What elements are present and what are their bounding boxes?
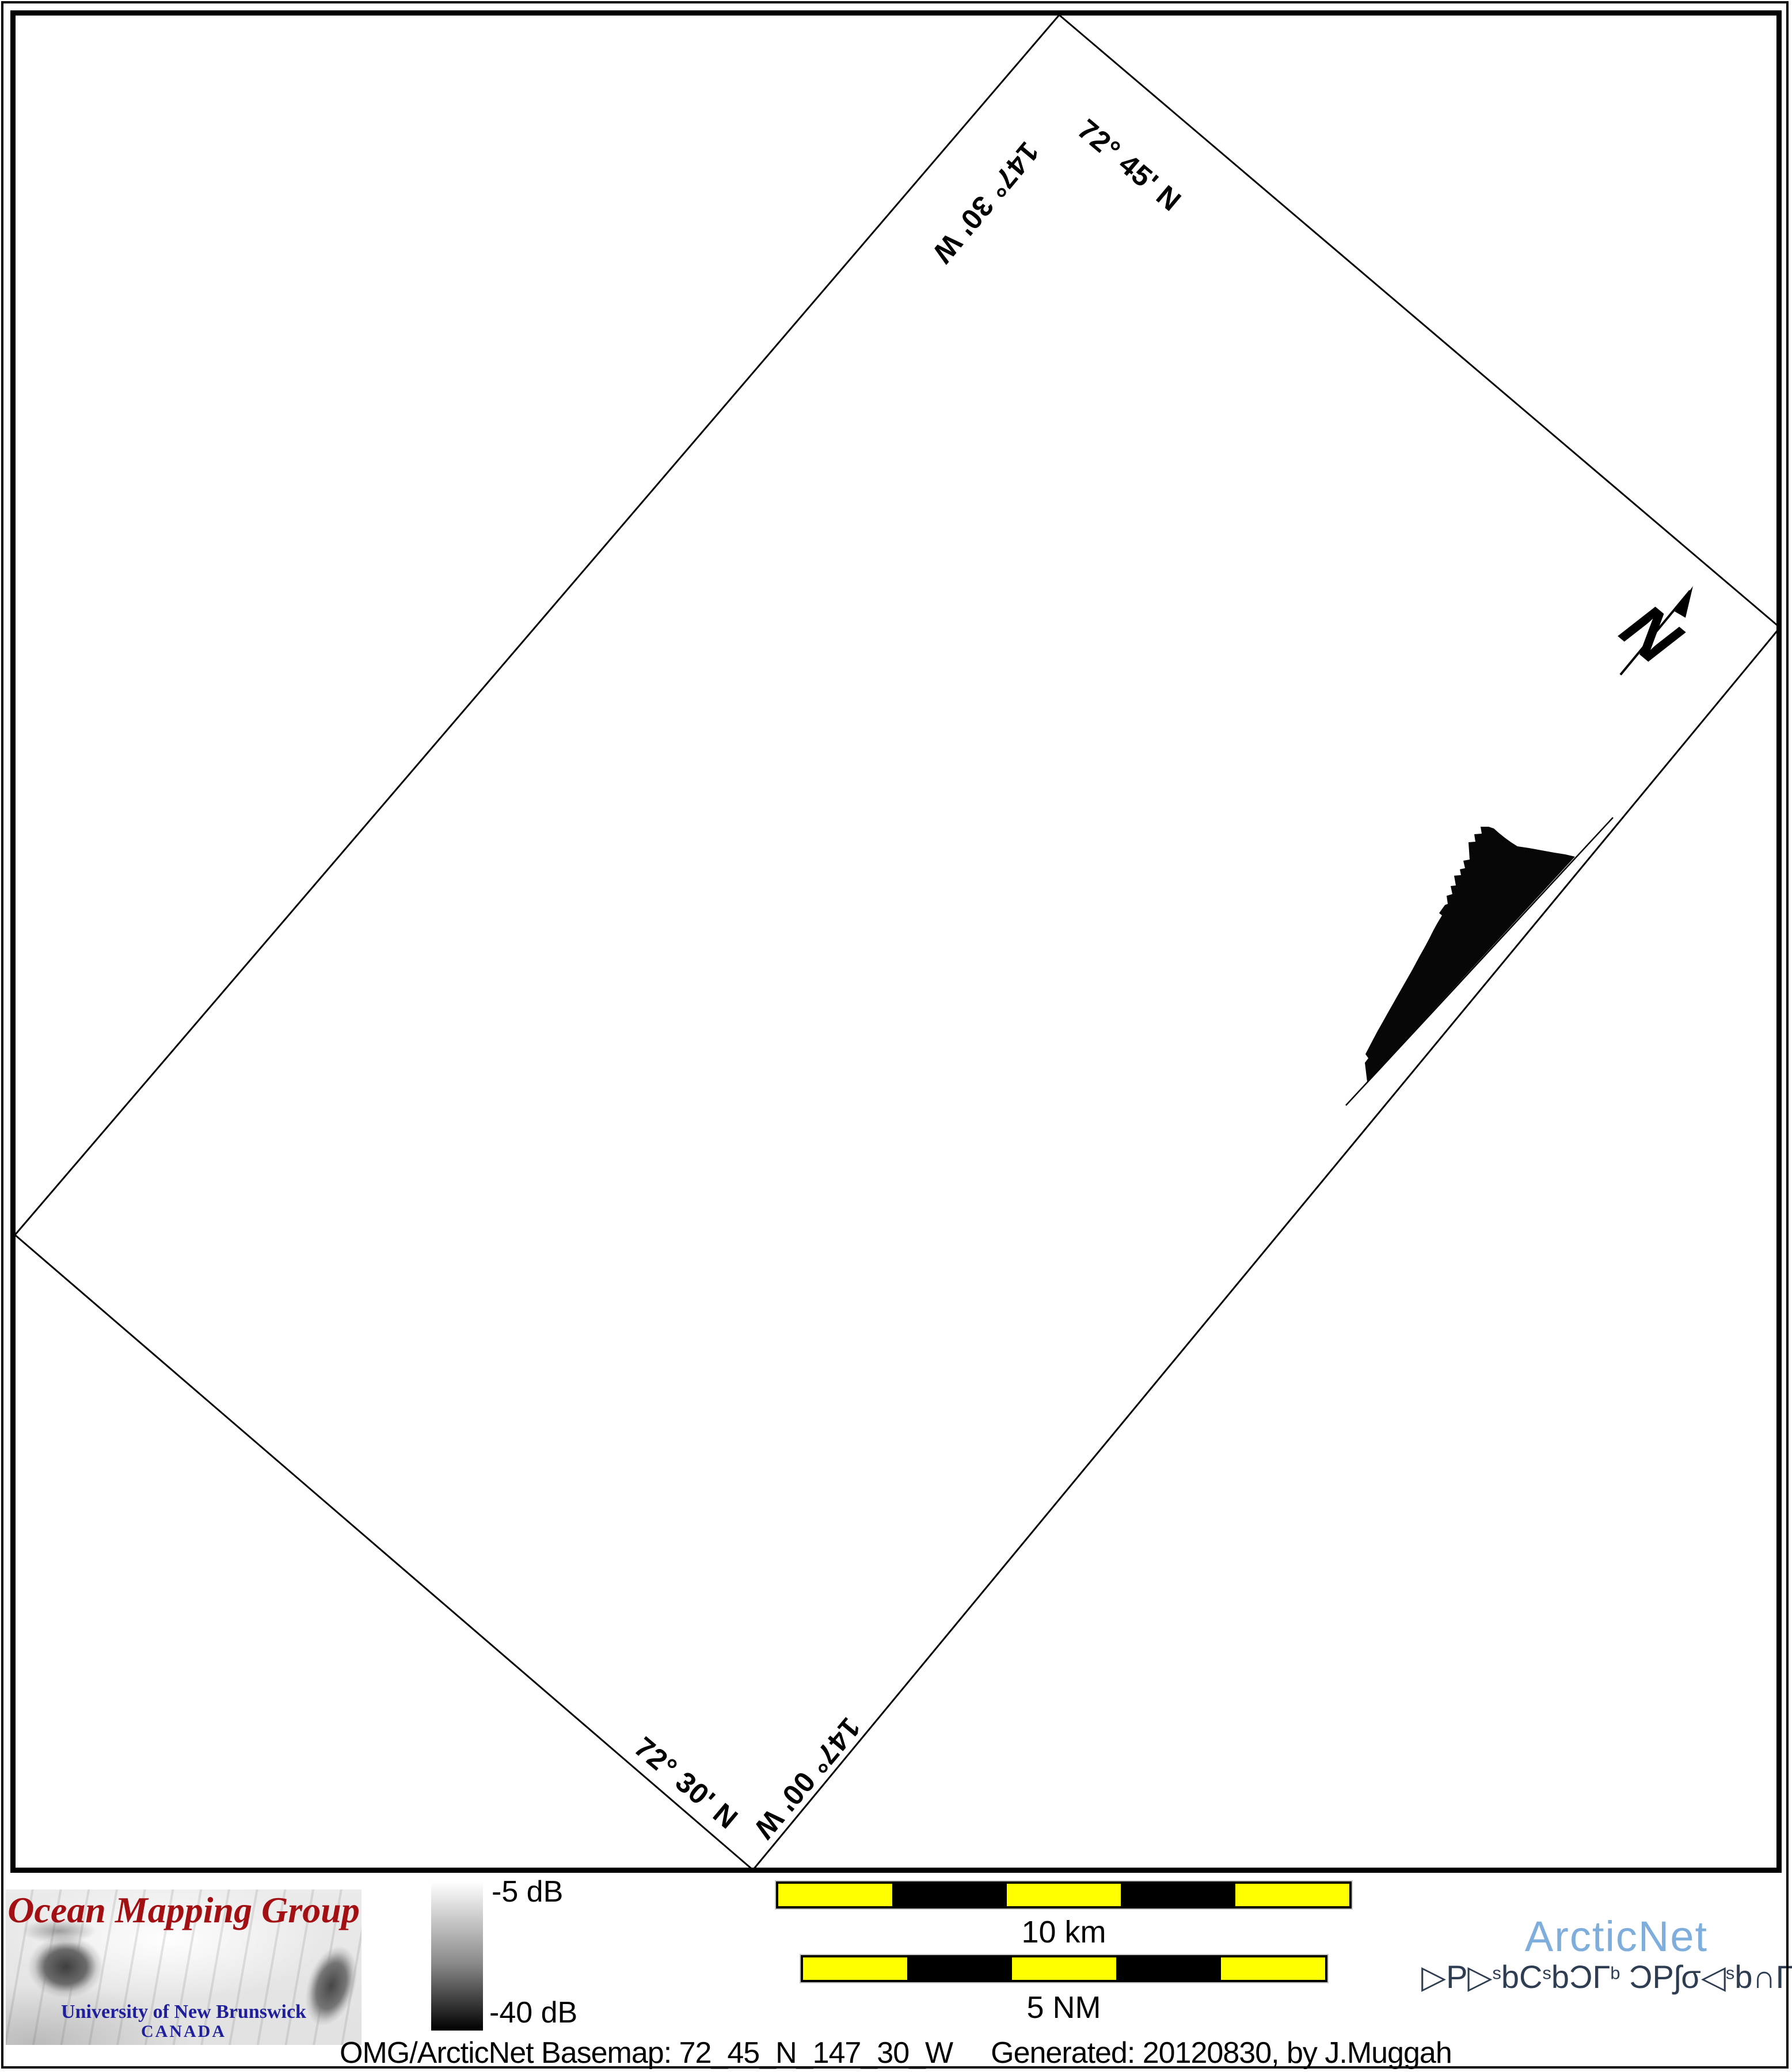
scalebar-segment bbox=[803, 1957, 907, 1980]
scalebar-segment bbox=[778, 1884, 892, 1906]
scalebar-nm bbox=[801, 1955, 1327, 1982]
omg-logo-university: University of New Brunswick bbox=[6, 2001, 362, 2023]
scalebar-segment bbox=[1235, 1884, 1349, 1906]
scalebar-segment bbox=[1221, 1957, 1325, 1980]
scalebar-segment bbox=[892, 1884, 1006, 1906]
helicopter-image bbox=[9, 1924, 112, 2013]
omg-logo: Ocean Mapping Group University of New Br… bbox=[6, 1889, 362, 2045]
scalebar-segment bbox=[907, 1957, 1011, 1980]
scalebar-segment bbox=[1007, 1884, 1121, 1906]
backscatter-colorbar bbox=[431, 1881, 483, 2031]
scalebar-segment bbox=[1121, 1884, 1235, 1906]
colorbar-min-label: -40 dB bbox=[489, 1997, 577, 2029]
arcticnet-inuktitut-text: ▷P▷sbCsbƆΓb ƆPʃσ◁sb∩Γ̇c bbox=[1410, 1960, 1792, 1994]
scalebar-nm-label: 5 NM bbox=[949, 1991, 1179, 2024]
caption-basemap-id: OMG/ArcticNet Basemap: 72_45_N_147_30_W bbox=[340, 2037, 953, 2069]
arcticnet-wordmark: ArcticNet bbox=[1473, 1915, 1760, 1959]
map-caption: OMG/ArcticNet Basemap: 72_45_N_147_30_W … bbox=[340, 2037, 1452, 2069]
omg-logo-title: Ocean Mapping Group bbox=[6, 1889, 362, 1931]
swath-wedge bbox=[1365, 827, 1575, 1082]
map-overlay bbox=[0, 0, 1792, 2072]
basemap-sheet: 72° 45' N 147° 30' W 72° 30' N 147° 00' … bbox=[0, 0, 1792, 2072]
scalebar-km-label: 10 km bbox=[949, 1915, 1179, 1949]
scalebar-segment bbox=[1116, 1957, 1220, 1980]
colorbar-max-label: -5 dB bbox=[492, 1876, 563, 1908]
scalebar-km bbox=[776, 1881, 1352, 1908]
scalebar-segment bbox=[1012, 1957, 1116, 1980]
caption-generated: Generated: 20120830, by J.Muggah bbox=[991, 2037, 1452, 2069]
survey-boundary bbox=[15, 15, 1780, 1870]
omg-logo-country: CANADA bbox=[6, 2022, 362, 2041]
